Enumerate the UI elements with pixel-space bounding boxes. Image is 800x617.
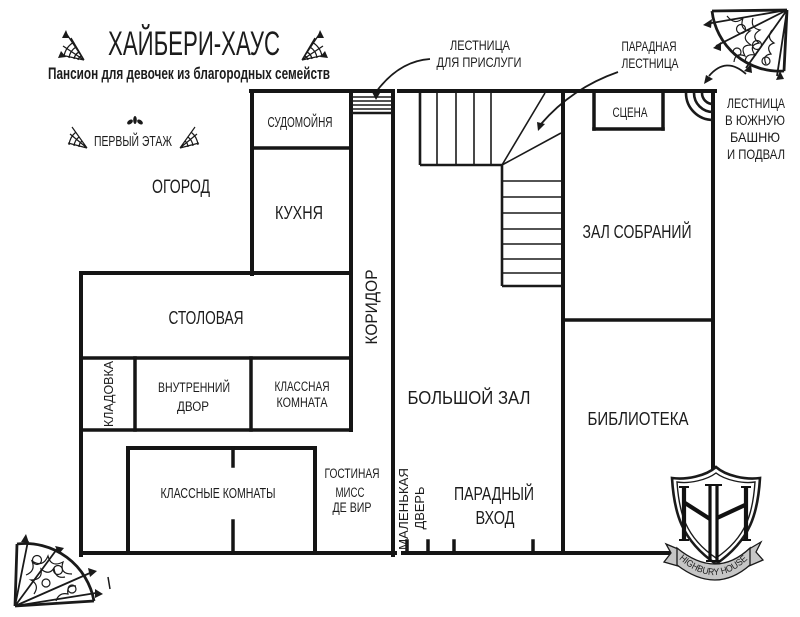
svg-text:КОМНАТА: КОМНАТА — [277, 395, 328, 410]
svg-text:КОРИДОР: КОРИДОР — [362, 270, 381, 345]
svg-text:ДЕ ВИР: ДЕ ВИР — [333, 500, 372, 515]
svg-text:ЛЕСТНИЦА: ЛЕСТНИЦА — [727, 95, 785, 111]
svg-text:ЛЕСТНИЦА: ЛЕСТНИЦА — [450, 37, 511, 53]
svg-text:ПЕРВЫЙ ЭТАЖ: ПЕРВЫЙ ЭТАЖ — [94, 132, 172, 150]
svg-text:КЛАССНЫЕ КОМНАТЫ: КЛАССНЫЕ КОМНАТЫ — [161, 486, 276, 502]
svg-text:ПАРАДНЫЙ: ПАРАДНЫЙ — [454, 483, 534, 504]
svg-text:И ПОДВАЛ: И ПОДВАЛ — [727, 146, 785, 162]
svg-text:ОГОРОД: ОГОРОД — [152, 177, 210, 198]
svg-text:КЛАССНАЯ: КЛАССНАЯ — [275, 379, 330, 394]
svg-text:КЛАДОВКА: КЛАДОВКА — [101, 361, 116, 427]
svg-text:ДЛЯ ПРИСЛУГИ: ДЛЯ ПРИСЛУГИ — [437, 54, 522, 70]
svg-text:ДВОР: ДВОР — [177, 399, 209, 414]
svg-text:БИБЛИОТЕКА: БИБЛИОТЕКА — [588, 409, 689, 429]
svg-text:Пансион для девочек из благоро: Пансион для девочек из благородных семей… — [48, 64, 330, 83]
svg-text:ПАРАДНАЯ: ПАРАДНАЯ — [622, 38, 677, 54]
svg-text:МИСС: МИСС — [336, 485, 365, 500]
svg-text:СЦЕНА: СЦЕНА — [613, 105, 648, 120]
svg-text:МАЛЕНЬКАЯ: МАЛЕНЬКАЯ — [396, 468, 411, 550]
svg-text:СТОЛОВАЯ: СТОЛОВАЯ — [169, 308, 244, 328]
svg-text:БАШНЮ: БАШНЮ — [730, 129, 780, 145]
svg-text:КУХНЯ: КУХНЯ — [275, 203, 323, 223]
svg-text:ВХОД: ВХОД — [476, 508, 515, 528]
svg-text:ХАЙБЕРИ-ХАУС: ХАЙБЕРИ-ХАУС — [108, 25, 280, 63]
svg-text:БОЛЬШОЙ ЗАЛ: БОЛЬШОЙ ЗАЛ — [408, 387, 531, 408]
svg-text:ЗАЛ СОБРАНИЙ: ЗАЛ СОБРАНИЙ — [583, 221, 692, 242]
svg-text:СУДОМОЙНЯ: СУДОМОЙНЯ — [268, 113, 333, 131]
svg-text:ЛЕСТНИЦА: ЛЕСТНИЦА — [622, 55, 679, 71]
svg-text:ГОСТИНАЯ: ГОСТИНАЯ — [325, 466, 380, 481]
svg-text:В ЮЖНУЮ: В ЮЖНУЮ — [725, 112, 785, 128]
svg-text:ВНУТРЕННИЙ: ВНУТРЕННИЙ — [158, 380, 230, 395]
svg-text:ДВЕРЬ: ДВЕРЬ — [412, 487, 427, 530]
